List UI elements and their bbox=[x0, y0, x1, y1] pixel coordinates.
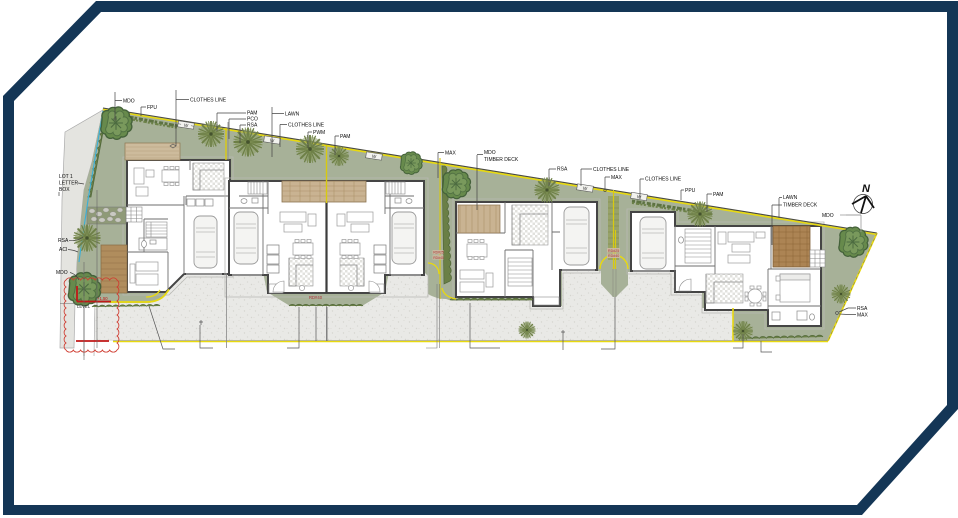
svg-text:TIMBER DECK: TIMBER DECK bbox=[484, 157, 519, 163]
svg-text:RD#40: RD#40 bbox=[608, 254, 619, 258]
svg-text:ACI: ACI bbox=[59, 247, 67, 253]
svg-text:RD#25: RD#25 bbox=[433, 251, 444, 255]
svg-text:RSA: RSA bbox=[857, 306, 868, 312]
svg-text:LOT 1: LOT 1 bbox=[59, 174, 73, 180]
svg-text:CLOTHES LINE: CLOTHES LINE bbox=[288, 123, 325, 129]
svg-text:RSA: RSA bbox=[247, 123, 258, 129]
svg-text:PWM: PWM bbox=[313, 130, 325, 136]
svg-text:N: N bbox=[862, 183, 871, 195]
svg-text:FPU: FPU bbox=[147, 105, 157, 111]
svg-text:BOX: BOX bbox=[59, 187, 70, 193]
svg-text:RD#25: RD#25 bbox=[608, 249, 619, 253]
svg-text:RSA: RSA bbox=[58, 238, 69, 244]
svg-text:MAX: MAX bbox=[445, 151, 457, 157]
svg-text:RD#40: RD#40 bbox=[433, 256, 444, 260]
svg-text:PAM: PAM bbox=[713, 192, 723, 198]
svg-text:TIMBER DECK: TIMBER DECK bbox=[783, 203, 818, 209]
svg-text:CLOTHES LINE: CLOTHES LINE bbox=[645, 177, 682, 183]
svg-text:LAWN: LAWN bbox=[285, 112, 300, 118]
svg-text:LAWN: LAWN bbox=[783, 195, 798, 201]
svg-text:MAX: MAX bbox=[611, 175, 623, 181]
svg-text:MDO: MDO bbox=[822, 213, 834, 219]
svg-text:MDO: MDO bbox=[484, 150, 496, 156]
svg-text:MDO: MDO bbox=[123, 99, 135, 105]
svg-text:+1.50: +1.50 bbox=[97, 296, 108, 301]
svg-text:RD#40: RD#40 bbox=[309, 295, 323, 300]
svg-text:MDO: MDO bbox=[56, 270, 68, 276]
svg-text:PAM: PAM bbox=[340, 134, 350, 140]
svg-text:CLOTHES LINE: CLOTHES LINE bbox=[190, 98, 227, 104]
svg-text:MAX: MAX bbox=[857, 313, 869, 319]
svg-text:CLOTHES LINE: CLOTHES LINE bbox=[593, 167, 630, 173]
svg-text:RSA: RSA bbox=[557, 167, 568, 173]
svg-text:PPU: PPU bbox=[685, 188, 696, 194]
svg-text:LETTER: LETTER bbox=[59, 181, 79, 187]
